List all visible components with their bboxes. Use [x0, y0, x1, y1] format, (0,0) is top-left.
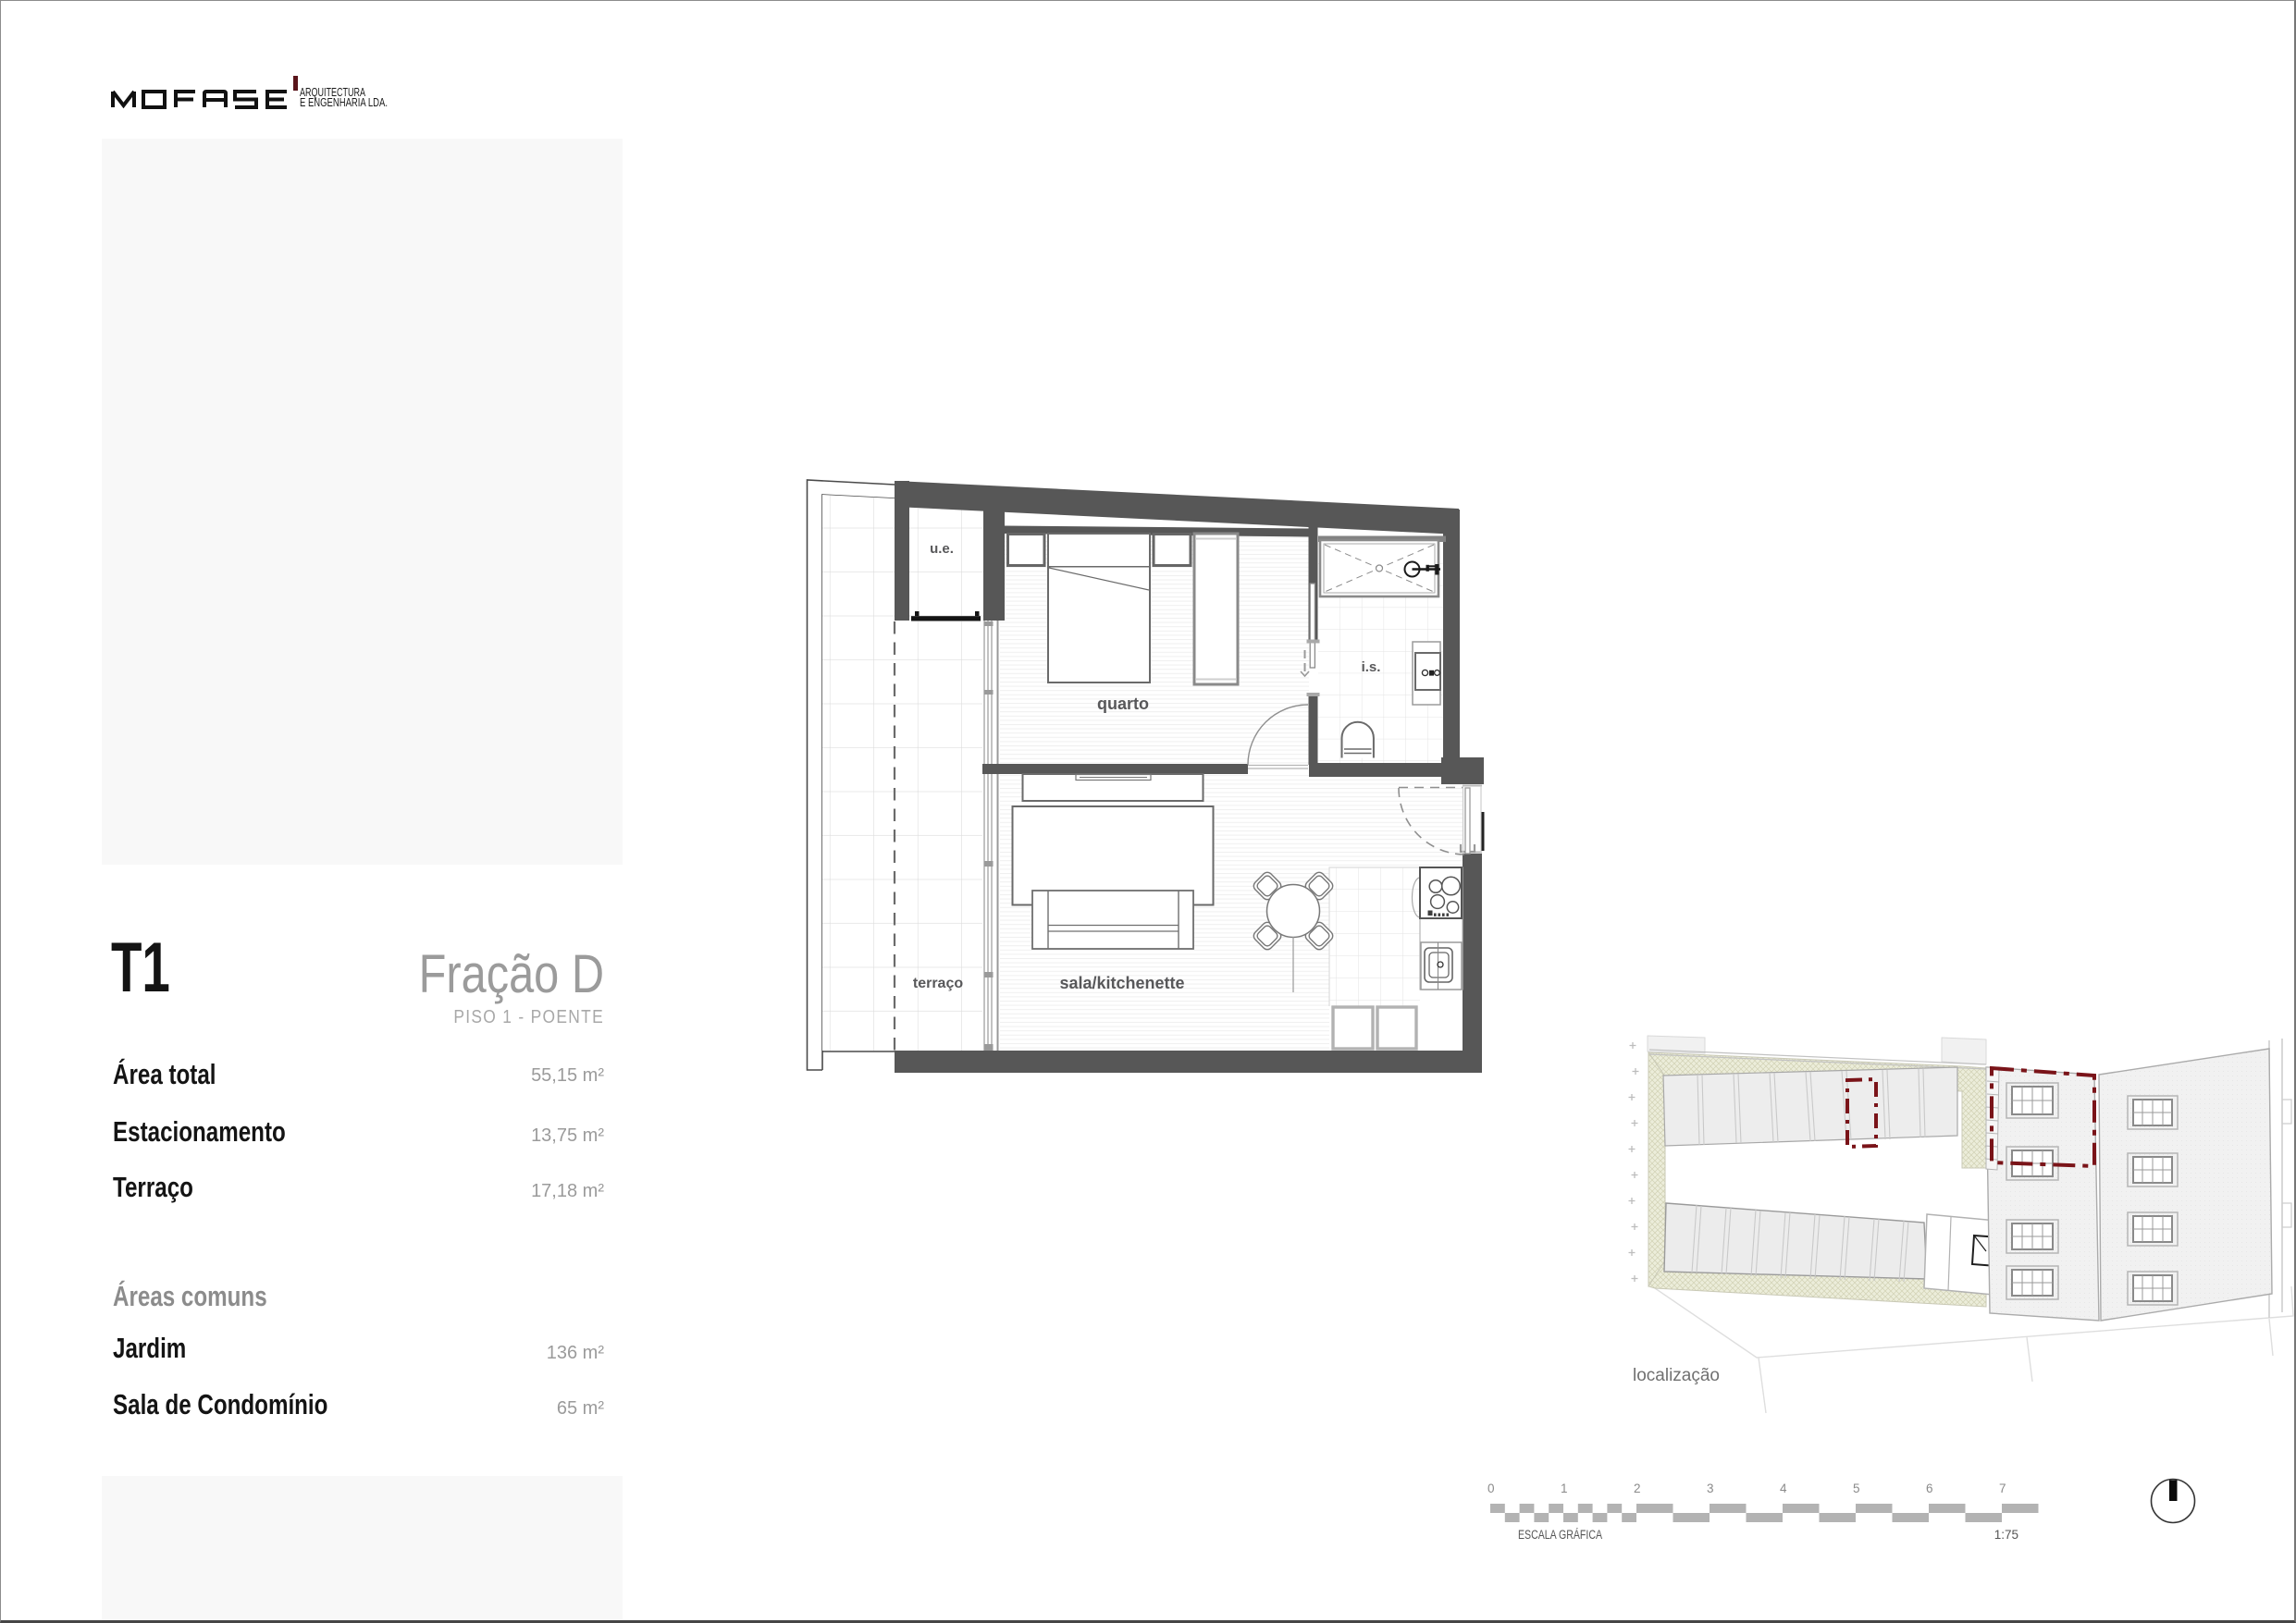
svg-text:sala/kitchenette: sala/kitchenette — [1059, 974, 1184, 992]
svg-text:localização: localização — [1633, 1366, 1720, 1385]
svg-text:2: 2 — [1634, 1482, 1641, 1495]
svg-text:ESCALA GRÁFICA: ESCALA GRÁFICA — [1518, 1528, 1602, 1542]
svg-text:i.s.: i.s. — [1362, 659, 1381, 675]
svg-text:5: 5 — [1853, 1482, 1860, 1495]
svg-text:4: 4 — [1780, 1482, 1787, 1495]
svg-text:quarto: quarto — [1097, 695, 1149, 713]
svg-text:u.e.: u.e. — [930, 541, 954, 557]
svg-text:1: 1 — [1561, 1482, 1568, 1495]
svg-text:terraço: terraço — [913, 976, 963, 991]
svg-text:7: 7 — [1999, 1482, 2006, 1495]
svg-text:0: 0 — [1487, 1482, 1495, 1495]
svg-text:3: 3 — [1707, 1482, 1714, 1495]
svg-text:1:75: 1:75 — [1994, 1528, 2018, 1542]
svg-text:6: 6 — [1926, 1482, 1933, 1495]
